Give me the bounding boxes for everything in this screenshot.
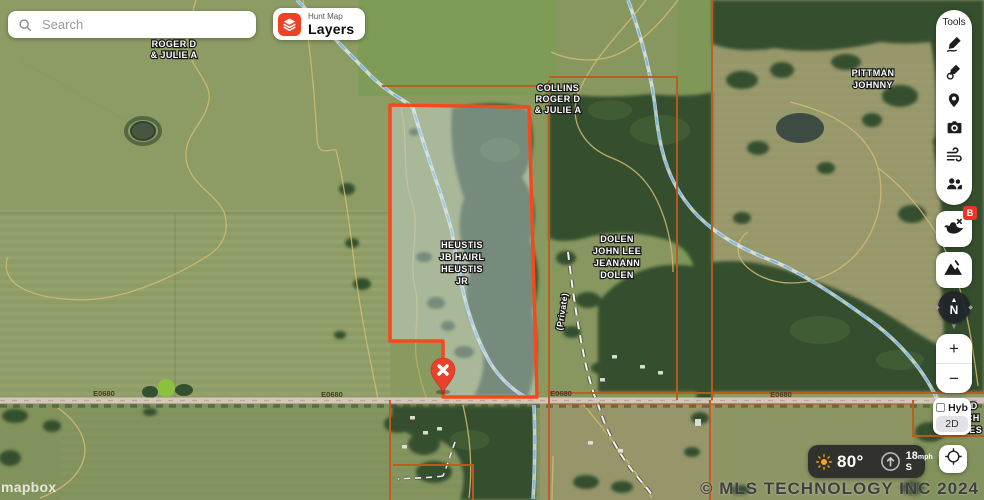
tools-title: Tools bbox=[942, 17, 965, 28]
label-collins: COLLINS bbox=[537, 83, 579, 93]
svg-text:JOHN LEE: JOHN LEE bbox=[593, 246, 641, 256]
map-type-primary[interactable]: Hyb bbox=[948, 402, 968, 414]
waterfowl-button[interactable]: B bbox=[936, 211, 972, 247]
crosshair-icon bbox=[945, 448, 962, 470]
zoom-in-button[interactable]: + bbox=[936, 334, 972, 363]
zoom-controls: + − bbox=[936, 334, 972, 393]
locate-button[interactable] bbox=[939, 445, 967, 473]
wind-tool[interactable] bbox=[936, 143, 972, 171]
pin-icon bbox=[946, 92, 962, 111]
zoom-out-button[interactable]: − bbox=[936, 364, 972, 393]
map-type-icon bbox=[936, 403, 945, 412]
compass-west-tick: ◆ bbox=[935, 304, 940, 311]
search-icon bbox=[18, 18, 32, 32]
svg-text:JR: JR bbox=[456, 276, 468, 286]
svg-text:JOHNNY: JOHNNY bbox=[853, 80, 893, 90]
compass-south-tick: ▼ bbox=[937, 322, 971, 331]
pen-line-icon bbox=[946, 35, 963, 55]
drop-pin-tool[interactable] bbox=[936, 87, 972, 115]
svg-text:& JULIE A: & JULIE A bbox=[151, 50, 198, 60]
wind-unit: mph bbox=[918, 454, 933, 461]
draw-area-tool[interactable] bbox=[936, 59, 972, 87]
weather-widget[interactable]: 80° 18mph S bbox=[808, 445, 925, 478]
duck-icon bbox=[943, 216, 965, 243]
draw-line-tool[interactable] bbox=[936, 31, 972, 59]
beta-badge: B bbox=[963, 206, 977, 220]
compass-control[interactable]: ▲ N ◆ ◆ ▼ bbox=[937, 291, 971, 335]
svg-text:& JULIE A: & JULIE A bbox=[535, 105, 582, 115]
wind-direction-icon bbox=[880, 451, 901, 472]
compass-disc: ▲ N bbox=[938, 291, 970, 323]
camera-icon bbox=[946, 119, 963, 139]
terrain-button[interactable] bbox=[936, 252, 972, 288]
svg-text:JEANANN: JEANANN bbox=[594, 258, 640, 268]
layers-icon bbox=[278, 13, 301, 36]
wind-readout: 18mph S bbox=[906, 451, 933, 473]
svg-text:ROGER D: ROGER D bbox=[536, 94, 581, 104]
svg-text:E0680: E0680 bbox=[550, 389, 572, 398]
camera-tool[interactable] bbox=[936, 115, 972, 143]
label-pittman: PITTMAN bbox=[852, 68, 895, 78]
compass-n-label: N bbox=[950, 304, 959, 316]
hunt-map-app: ROGER D & JULIE A COLLINS ROGER D & JULI… bbox=[0, 0, 984, 500]
copyright-text: © MLS TECHNOLOGY INC 2024 bbox=[700, 479, 979, 499]
svg-text:HEUSTIS: HEUSTIS bbox=[441, 264, 483, 274]
members-icon bbox=[946, 175, 963, 195]
svg-text:DOLEN: DOLEN bbox=[600, 270, 634, 280]
layers-label: Layers bbox=[308, 22, 354, 36]
pen-area-icon bbox=[946, 63, 963, 83]
wind-icon bbox=[946, 147, 963, 167]
temperature: 80° bbox=[837, 452, 864, 472]
mapbox-logo[interactable]: mapbox bbox=[1, 479, 56, 495]
map-canvas[interactable]: ROGER D & JULIE A COLLINS ROGER D & JULI… bbox=[0, 0, 984, 500]
svg-text:E0680: E0680 bbox=[93, 389, 115, 398]
layers-eyebrow: Hunt Map bbox=[308, 13, 354, 21]
search-bar bbox=[8, 11, 256, 38]
label-roger: ROGER D bbox=[152, 39, 197, 49]
wind-direction: S bbox=[906, 463, 933, 473]
members-tool[interactable] bbox=[936, 171, 972, 199]
wind-speed: 18 bbox=[906, 450, 918, 462]
tools-panel: Tools bbox=[936, 10, 972, 205]
search-input[interactable] bbox=[40, 16, 246, 33]
compass-east-tick: ◆ bbox=[968, 304, 973, 311]
label-dolen: DOLEN bbox=[600, 234, 634, 244]
svg-text:E0680: E0680 bbox=[321, 390, 343, 399]
mountain-icon bbox=[943, 257, 965, 284]
sun-icon bbox=[816, 454, 832, 470]
label-heustis: HEUSTIS bbox=[441, 240, 483, 250]
map-type-secondary[interactable]: 2D bbox=[936, 416, 968, 432]
layers-button[interactable]: Hunt Map Layers bbox=[273, 8, 365, 40]
svg-text:JB HAIRL: JB HAIRL bbox=[440, 252, 485, 262]
svg-text:E0680: E0680 bbox=[770, 390, 792, 399]
map-type-toggle[interactable]: Hyb 2D bbox=[933, 398, 971, 435]
